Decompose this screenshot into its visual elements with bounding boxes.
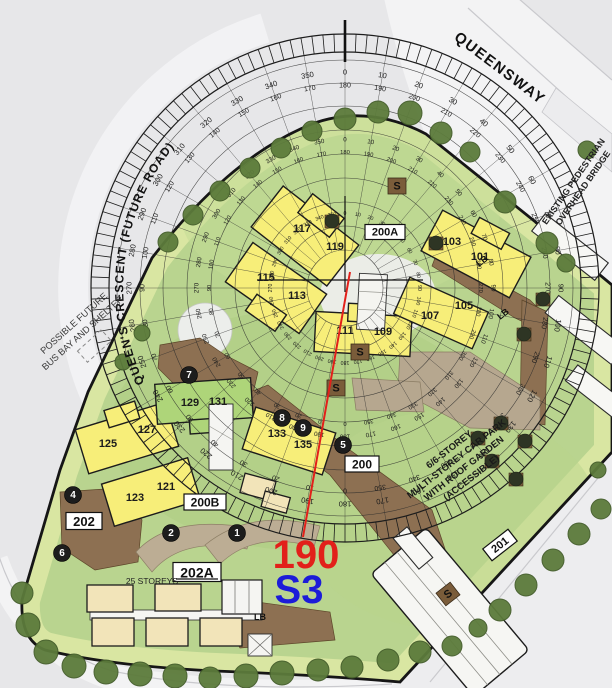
- site-plan-canvas: 0180018001019010190102020020200203021030…: [0, 0, 612, 688]
- precinct-label-200A: 200A: [365, 225, 405, 240]
- tree-icon: [489, 599, 511, 621]
- compass-degree-label: 10: [354, 212, 361, 219]
- compass-degree-label: 270: [268, 284, 274, 293]
- tree-icon: [430, 122, 452, 144]
- tree-icon: [16, 613, 40, 637]
- dark-tree-icon: [536, 292, 550, 306]
- compass-degree-label: 10: [378, 70, 388, 80]
- tree-icon: [542, 549, 564, 571]
- tree-icon: [94, 660, 118, 684]
- compass-reciprocal-label: 270: [477, 283, 483, 293]
- numbered-point-label: 4: [70, 490, 76, 501]
- precinct-label-202: 202: [66, 513, 102, 530]
- building-label: 135: [294, 439, 312, 451]
- tree-icon: [341, 656, 363, 678]
- dark-tree-icon: [325, 214, 339, 228]
- building-label: 129: [181, 397, 199, 409]
- tree-icon: [334, 108, 356, 130]
- tree-icon: [134, 325, 150, 341]
- building-label: 107: [421, 310, 439, 322]
- compass-reciprocal-label: 90: [207, 285, 213, 291]
- tree-icon: [536, 232, 558, 254]
- svg-text:202: 202: [73, 514, 95, 529]
- numbered-point-label: 1: [234, 528, 240, 539]
- tree-icon: [128, 662, 152, 686]
- tree-icon: [568, 523, 590, 545]
- substation-marker: S: [351, 344, 369, 360]
- svg-text:S: S: [332, 383, 339, 395]
- bearing-sector: S3: [275, 568, 324, 612]
- tree-icon: [302, 121, 322, 141]
- building-label: 105: [455, 300, 473, 312]
- building-label: 119: [326, 241, 344, 253]
- tree-icon: [158, 232, 178, 252]
- linkway-west: [209, 404, 233, 470]
- tree-icon: [515, 574, 537, 596]
- precinct-label-200B: 200B: [184, 494, 226, 510]
- compass-reciprocal-label: 80: [209, 308, 216, 315]
- lb-marker: LB: [254, 612, 266, 622]
- precinct-label-202A: 202A: [173, 563, 221, 582]
- tree-icon: [271, 138, 291, 158]
- building-label: 109: [374, 326, 392, 338]
- dark-tree-icon: [429, 236, 443, 250]
- tree-icon: [377, 649, 399, 671]
- numbered-point-label: 6: [59, 548, 65, 559]
- building-label: 115: [257, 272, 275, 284]
- tree-icon: [270, 661, 294, 685]
- building-label: 133: [268, 428, 286, 440]
- tree-icon: [199, 667, 221, 688]
- tree-icon: [34, 640, 58, 664]
- tree-icon: [11, 582, 33, 604]
- compass-reciprocal-label: 0: [343, 487, 347, 494]
- compass-degree-label: 0: [343, 137, 347, 144]
- tree-icon: [557, 254, 575, 272]
- compass-reciprocal-label: 0: [343, 420, 346, 426]
- building-label: 123: [126, 492, 144, 504]
- svg-text:200B: 200B: [191, 496, 220, 510]
- svg-text:LB: LB: [254, 612, 266, 622]
- building-label: 125: [99, 438, 117, 450]
- numbered-point-label: 5: [340, 440, 346, 451]
- svg-text:S: S: [393, 181, 400, 193]
- svg-text:S: S: [356, 347, 363, 359]
- compass-reciprocal-label: 180: [339, 83, 351, 90]
- dark-tree-icon: [509, 472, 523, 486]
- compass-degree-label: 180: [339, 500, 352, 509]
- substation-marker: S: [388, 178, 406, 194]
- compass-reciprocal-label: 180: [340, 150, 350, 156]
- numbered-point-label: 7: [186, 370, 192, 381]
- numbered-point-label: 2: [168, 528, 174, 539]
- compass-degree-label: 90: [416, 285, 422, 291]
- building-label: 103: [443, 236, 461, 248]
- tree-icon: [240, 158, 260, 178]
- tree-icon: [367, 101, 389, 123]
- compass-degree-label: 270: [194, 282, 201, 293]
- tree-icon: [442, 636, 462, 656]
- dark-tree-icon: [518, 434, 532, 448]
- tree-icon: [494, 191, 516, 213]
- storeys-label: 25 STOREYS: [126, 576, 179, 586]
- site-plan: 0180018001019010190102020020200203021030…: [0, 0, 612, 688]
- svg-text:200A: 200A: [372, 227, 398, 239]
- tree-icon: [460, 142, 480, 162]
- building-label: 121: [157, 481, 175, 493]
- building-label: 113: [288, 290, 306, 302]
- compass-degree-label: 180: [341, 359, 350, 365]
- svg-text:200: 200: [352, 458, 372, 472]
- compass-degree-label: 80: [414, 272, 421, 279]
- tree-icon: [591, 499, 611, 519]
- compass-degree-label: 90: [557, 284, 566, 292]
- compass-reciprocal-label: 90: [140, 284, 147, 292]
- compass-degree-label: 90: [490, 285, 497, 292]
- numbered-point-label: 8: [279, 413, 285, 424]
- building-label: 117: [293, 223, 311, 235]
- precinct-label-200: 200: [345, 456, 379, 472]
- numbered-point-label: 9: [300, 423, 306, 434]
- tree-icon: [210, 181, 230, 201]
- tree-icon: [62, 654, 86, 678]
- tree-icon: [590, 462, 606, 478]
- tree-icon: [163, 664, 187, 688]
- svg-text:202A: 202A: [180, 565, 213, 581]
- building-label: 131: [209, 396, 227, 408]
- tree-icon: [307, 659, 329, 681]
- tree-icon: [234, 664, 258, 688]
- tree-icon: [469, 619, 487, 637]
- compass-degree-label: 0: [343, 68, 347, 77]
- tree-icon: [398, 101, 422, 125]
- tree-icon: [183, 205, 203, 225]
- building-label: 127: [138, 424, 156, 436]
- tree-icon: [409, 641, 431, 663]
- dark-tree-icon: [517, 327, 531, 341]
